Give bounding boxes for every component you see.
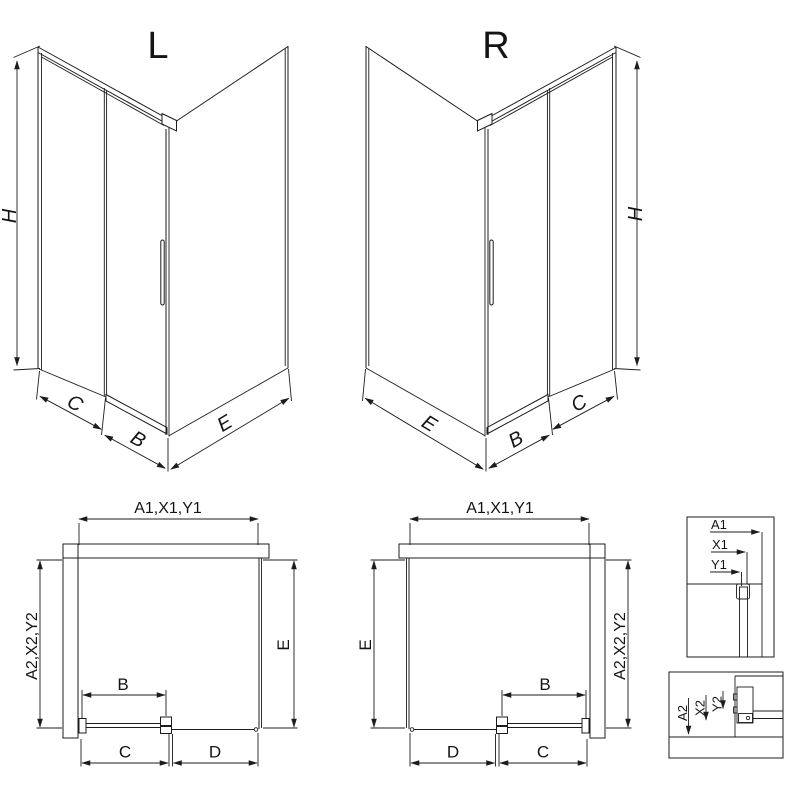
door-roller-bracket bbox=[161, 727, 172, 734]
plan-right-dim-A1X1Y1: A1,X1,Y1 bbox=[466, 500, 534, 517]
plan-left-geometry bbox=[37, 519, 298, 767]
detail-top-label-A1: A1 bbox=[711, 517, 727, 532]
plan-left-dim-E: E bbox=[274, 639, 293, 650]
wall-top bbox=[399, 544, 605, 558]
shower-enclosure-technical-drawing: L H C B E bbox=[0, 0, 800, 800]
iso-right-title: R bbox=[482, 25, 509, 67]
track-end-stop bbox=[254, 728, 258, 732]
door-handle bbox=[161, 240, 164, 305]
plan-left-dim-D: D bbox=[209, 743, 221, 762]
plan-right-geometry bbox=[371, 519, 632, 767]
bottom-rail-profile-section bbox=[737, 687, 753, 723]
plan-right-dim-E: E bbox=[356, 639, 375, 650]
plan-view-left: A1,X1,Y1 A2,X2,Y2 E B C D bbox=[24, 500, 298, 767]
plan-right-dim-B: B bbox=[539, 675, 550, 694]
plan-right-dim-A2X2Y2: A2,X2,Y2 bbox=[612, 612, 629, 680]
iso-right-dim-E: E bbox=[418, 411, 441, 437]
bottom-threshold-rail bbox=[487, 395, 548, 435]
iso-right-dim-H: H bbox=[625, 206, 647, 221]
plan-view-right: A1,X1,Y1 E A2,X2,Y2 B D C bbox=[356, 500, 632, 767]
plan-right-dim-D: D bbox=[447, 743, 459, 762]
iso-left-dim-E: E bbox=[214, 411, 237, 437]
door-roller-bracket bbox=[497, 727, 508, 734]
plan-right-dim-C: C bbox=[537, 743, 549, 762]
detail-bottom-label-X2: X2 bbox=[693, 700, 708, 716]
detail-box-top: A1 X1 Y1 bbox=[687, 517, 774, 657]
iso-left-geometry bbox=[38, 46, 288, 437]
iso-left-title: L bbox=[147, 25, 168, 67]
plan-left-dim-B: B bbox=[117, 675, 128, 694]
iso-right-geometry bbox=[363, 46, 641, 472]
door-roller-bracket bbox=[497, 717, 508, 726]
detail-top-label-X1: X1 bbox=[712, 537, 728, 552]
detail-bottom-label-A2: A2 bbox=[675, 705, 690, 721]
detail-box-bottom: A2 X2 Y2 bbox=[669, 672, 783, 758]
iso-right-dim-C: C bbox=[568, 390, 592, 416]
drawing-canvas: L H C B E bbox=[0, 0, 800, 800]
door-roller-bracket bbox=[161, 717, 172, 726]
detail-top-label-Y1: Y1 bbox=[711, 557, 727, 572]
detail-frame bbox=[687, 517, 774, 657]
glass-section bbox=[740, 587, 748, 657]
plan-left-dim-C: C bbox=[119, 743, 131, 762]
track-end-stop bbox=[410, 728, 414, 732]
iso-view-left: L H C B E bbox=[0, 25, 292, 472]
plan-left-dim-A1X1Y1: A1,X1,Y1 bbox=[134, 500, 202, 517]
iso-left-dim-H: H bbox=[0, 208, 21, 223]
wall-top bbox=[63, 544, 269, 558]
wall-right bbox=[590, 544, 605, 738]
door-handle bbox=[490, 240, 493, 305]
iso-view-right: R H E B C bbox=[363, 25, 648, 472]
roller-axle bbox=[746, 716, 749, 719]
wall-left bbox=[63, 544, 78, 738]
rail-wall-cap bbox=[582, 719, 589, 734]
rail-wall-cap bbox=[79, 719, 86, 734]
iso-left-dim-C: C bbox=[63, 391, 87, 417]
detail-bottom-label-Y2: Y2 bbox=[710, 696, 725, 712]
rail-base-section bbox=[739, 714, 753, 723]
plan-left-dim-A2X2Y2: A2,X2,Y2 bbox=[24, 612, 41, 680]
